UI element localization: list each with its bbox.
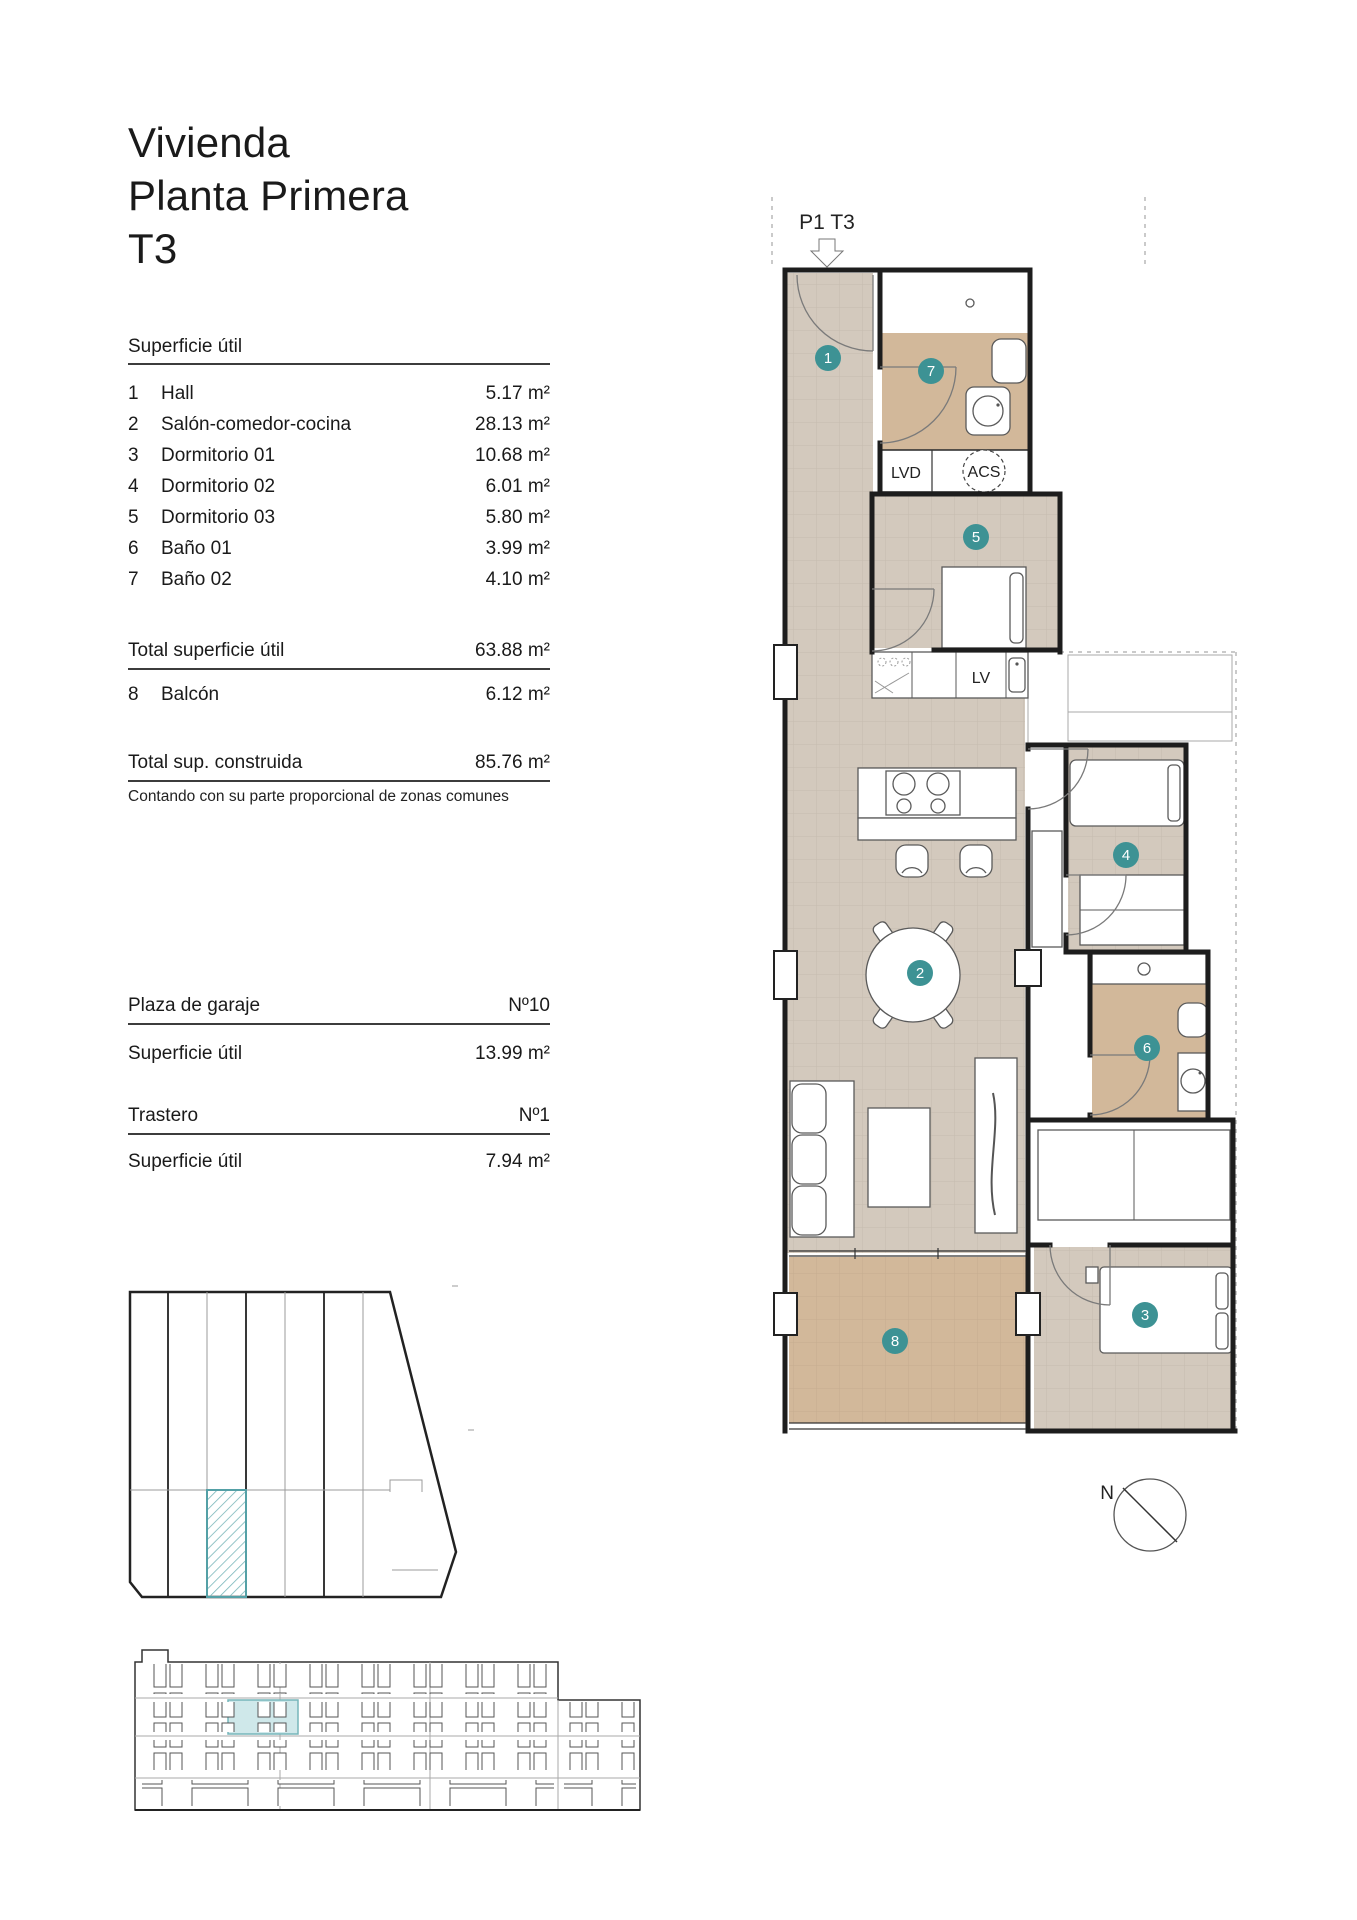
site-plan-highlight xyxy=(207,1490,246,1597)
room-area: 28.13 m² xyxy=(475,414,550,436)
toilet-icon xyxy=(992,339,1026,383)
surface-heading-label: Superficie útil xyxy=(128,336,242,358)
storage-area-row: Superficie útil 7.94 m² xyxy=(128,1151,550,1179)
room-badge: 4 xyxy=(1113,842,1139,868)
room-area: 6.01 m² xyxy=(486,476,550,498)
room-badge: 3 xyxy=(1132,1302,1158,1328)
room-badge: 7 xyxy=(918,358,944,384)
total-useful-value: 63.88 m² xyxy=(475,640,550,662)
surface-row: 4 Dormitorio 02 6.01 m² xyxy=(128,476,550,507)
unit-label: P1 T3 xyxy=(799,211,855,234)
room-number: 8 xyxy=(128,684,161,706)
garage-area-row: Superficie útil 13.99 m² xyxy=(128,1043,550,1071)
note: Contando con su parte proporcional de zo… xyxy=(128,788,509,806)
total-built-value: 85.76 m² xyxy=(475,752,550,774)
storage-area-value: 7.94 m² xyxy=(486,1151,550,1173)
window-icon xyxy=(774,645,797,699)
lv-label: LV xyxy=(972,670,991,687)
badge-number: 2 xyxy=(916,965,924,982)
surface-row: 3 Dormitorio 01 10.68 m² xyxy=(128,445,550,476)
room-number: 1 xyxy=(128,383,161,405)
garage-area-label: Superficie útil xyxy=(128,1043,242,1065)
north-label: N xyxy=(1100,1483,1114,1504)
lvd-label: LVD xyxy=(891,465,921,482)
room-number: 5 xyxy=(128,507,161,529)
garage-heading-row: Plaza de garaje Nº10 xyxy=(128,995,550,1025)
room-number: 3 xyxy=(128,445,161,467)
north-compass: N xyxy=(1100,1479,1186,1551)
floor-plan: P1 T3 xyxy=(770,190,1240,1560)
total-built-label: Total sup. construida xyxy=(128,752,302,774)
badge-number: 5 xyxy=(972,529,980,546)
room-name: Balcón xyxy=(161,684,486,706)
room-name: Dormitorio 03 xyxy=(161,507,486,529)
coffee-table-icon xyxy=(868,1108,930,1207)
room-badge: 6 xyxy=(1134,1035,1160,1061)
page-title: Vivienda Planta Primera T3 xyxy=(128,116,409,275)
elevation xyxy=(100,1630,660,1820)
stool-icon xyxy=(896,845,928,877)
room-name: Dormitorio 01 xyxy=(161,445,475,467)
window-icon xyxy=(1015,950,1041,986)
room-name: Salón-comedor-cocina xyxy=(161,414,475,436)
plan-sheet: Vivienda Planta Primera T3 Superficie út… xyxy=(0,0,1357,1920)
kitchen-counter: LV xyxy=(872,652,1028,698)
surface-table-heading: Superficie útil xyxy=(128,336,550,365)
utility-band: LVD ACS xyxy=(880,450,1030,492)
room-number: 6 xyxy=(128,538,161,560)
window-icon xyxy=(1016,1293,1040,1335)
room-area: 6.12 m² xyxy=(486,684,550,706)
surface-row: 2 Salón-comedor-cocina 28.13 m² xyxy=(128,414,550,445)
bedroom3-furniture xyxy=(942,567,1026,648)
stool-icon xyxy=(960,845,992,877)
badge-number: 1 xyxy=(824,350,832,367)
storage-heading-row: Trastero Nº1 xyxy=(128,1105,550,1135)
surface-row: 6 Baño 01 3.99 m² xyxy=(128,538,550,569)
room-area: 4.10 m² xyxy=(486,569,550,591)
surface-row: 5 Dormitorio 03 5.80 m² xyxy=(128,507,550,538)
tv-console-icon xyxy=(975,1058,1017,1233)
toilet-icon xyxy=(1178,1003,1208,1037)
garage-heading: Plaza de garaje xyxy=(128,995,260,1017)
washer-icon xyxy=(1178,1053,1208,1111)
balcony-row: 8 Balcón 6.12 m² xyxy=(128,684,550,706)
room-area: 5.80 m² xyxy=(486,507,550,529)
room-name: Baño 01 xyxy=(161,538,486,560)
storage-area-label: Superficie útil xyxy=(128,1151,242,1173)
badge-number: 7 xyxy=(927,363,935,380)
closet-icon xyxy=(1032,831,1062,947)
window-icon xyxy=(774,1293,797,1335)
total-useful-row: Total superficie útil 63.88 m² xyxy=(128,640,550,670)
badge-number: 4 xyxy=(1122,847,1130,864)
storage-number: Nº1 xyxy=(519,1105,550,1127)
site-plan xyxy=(100,1280,480,1610)
room-area: 3.99 m² xyxy=(486,538,550,560)
title-line1: Vivienda xyxy=(128,116,409,169)
room-name: Dormitorio 02 xyxy=(161,476,486,498)
surface-rows: 1 Hall 5.17 m² 2 Salón-comedor-cocina 28… xyxy=(128,383,550,600)
room-name: Hall xyxy=(161,383,486,405)
total-useful-label: Total superficie útil xyxy=(128,640,284,662)
room-area: 5.17 m² xyxy=(486,383,550,405)
window-icon xyxy=(774,951,797,999)
acs-label: ACS xyxy=(968,464,1001,481)
room-badge: 8 xyxy=(882,1328,908,1354)
room-number: 2 xyxy=(128,414,161,436)
surface-row: 7 Baño 02 4.10 m² xyxy=(128,569,550,600)
room-name: Baño 02 xyxy=(161,569,486,591)
total-built-row: Total sup. construida 85.76 m² xyxy=(128,752,550,782)
title-line2: Planta Primera xyxy=(128,169,409,222)
badge-number: 8 xyxy=(891,1333,899,1350)
storage-heading: Trastero xyxy=(128,1105,198,1127)
room-number: 7 xyxy=(128,569,161,591)
room-badge: 2 xyxy=(907,960,933,986)
room-number: 4 xyxy=(128,476,161,498)
badge-number: 3 xyxy=(1141,1307,1149,1324)
surface-row: 1 Hall 5.17 m² xyxy=(128,383,550,414)
surface-table: Superficie útil xyxy=(128,336,550,365)
site-outline xyxy=(130,1292,456,1597)
entry-arrow-icon xyxy=(811,239,843,267)
garage-area-value: 13.99 m² xyxy=(475,1043,550,1065)
room-badge: 5 xyxy=(963,524,989,550)
title-line3: T3 xyxy=(128,222,409,275)
garage-number: Nº10 xyxy=(508,995,550,1017)
badge-number: 6 xyxy=(1143,1040,1151,1057)
room-area: 10.68 m² xyxy=(475,445,550,467)
room-badge: 1 xyxy=(815,345,841,371)
